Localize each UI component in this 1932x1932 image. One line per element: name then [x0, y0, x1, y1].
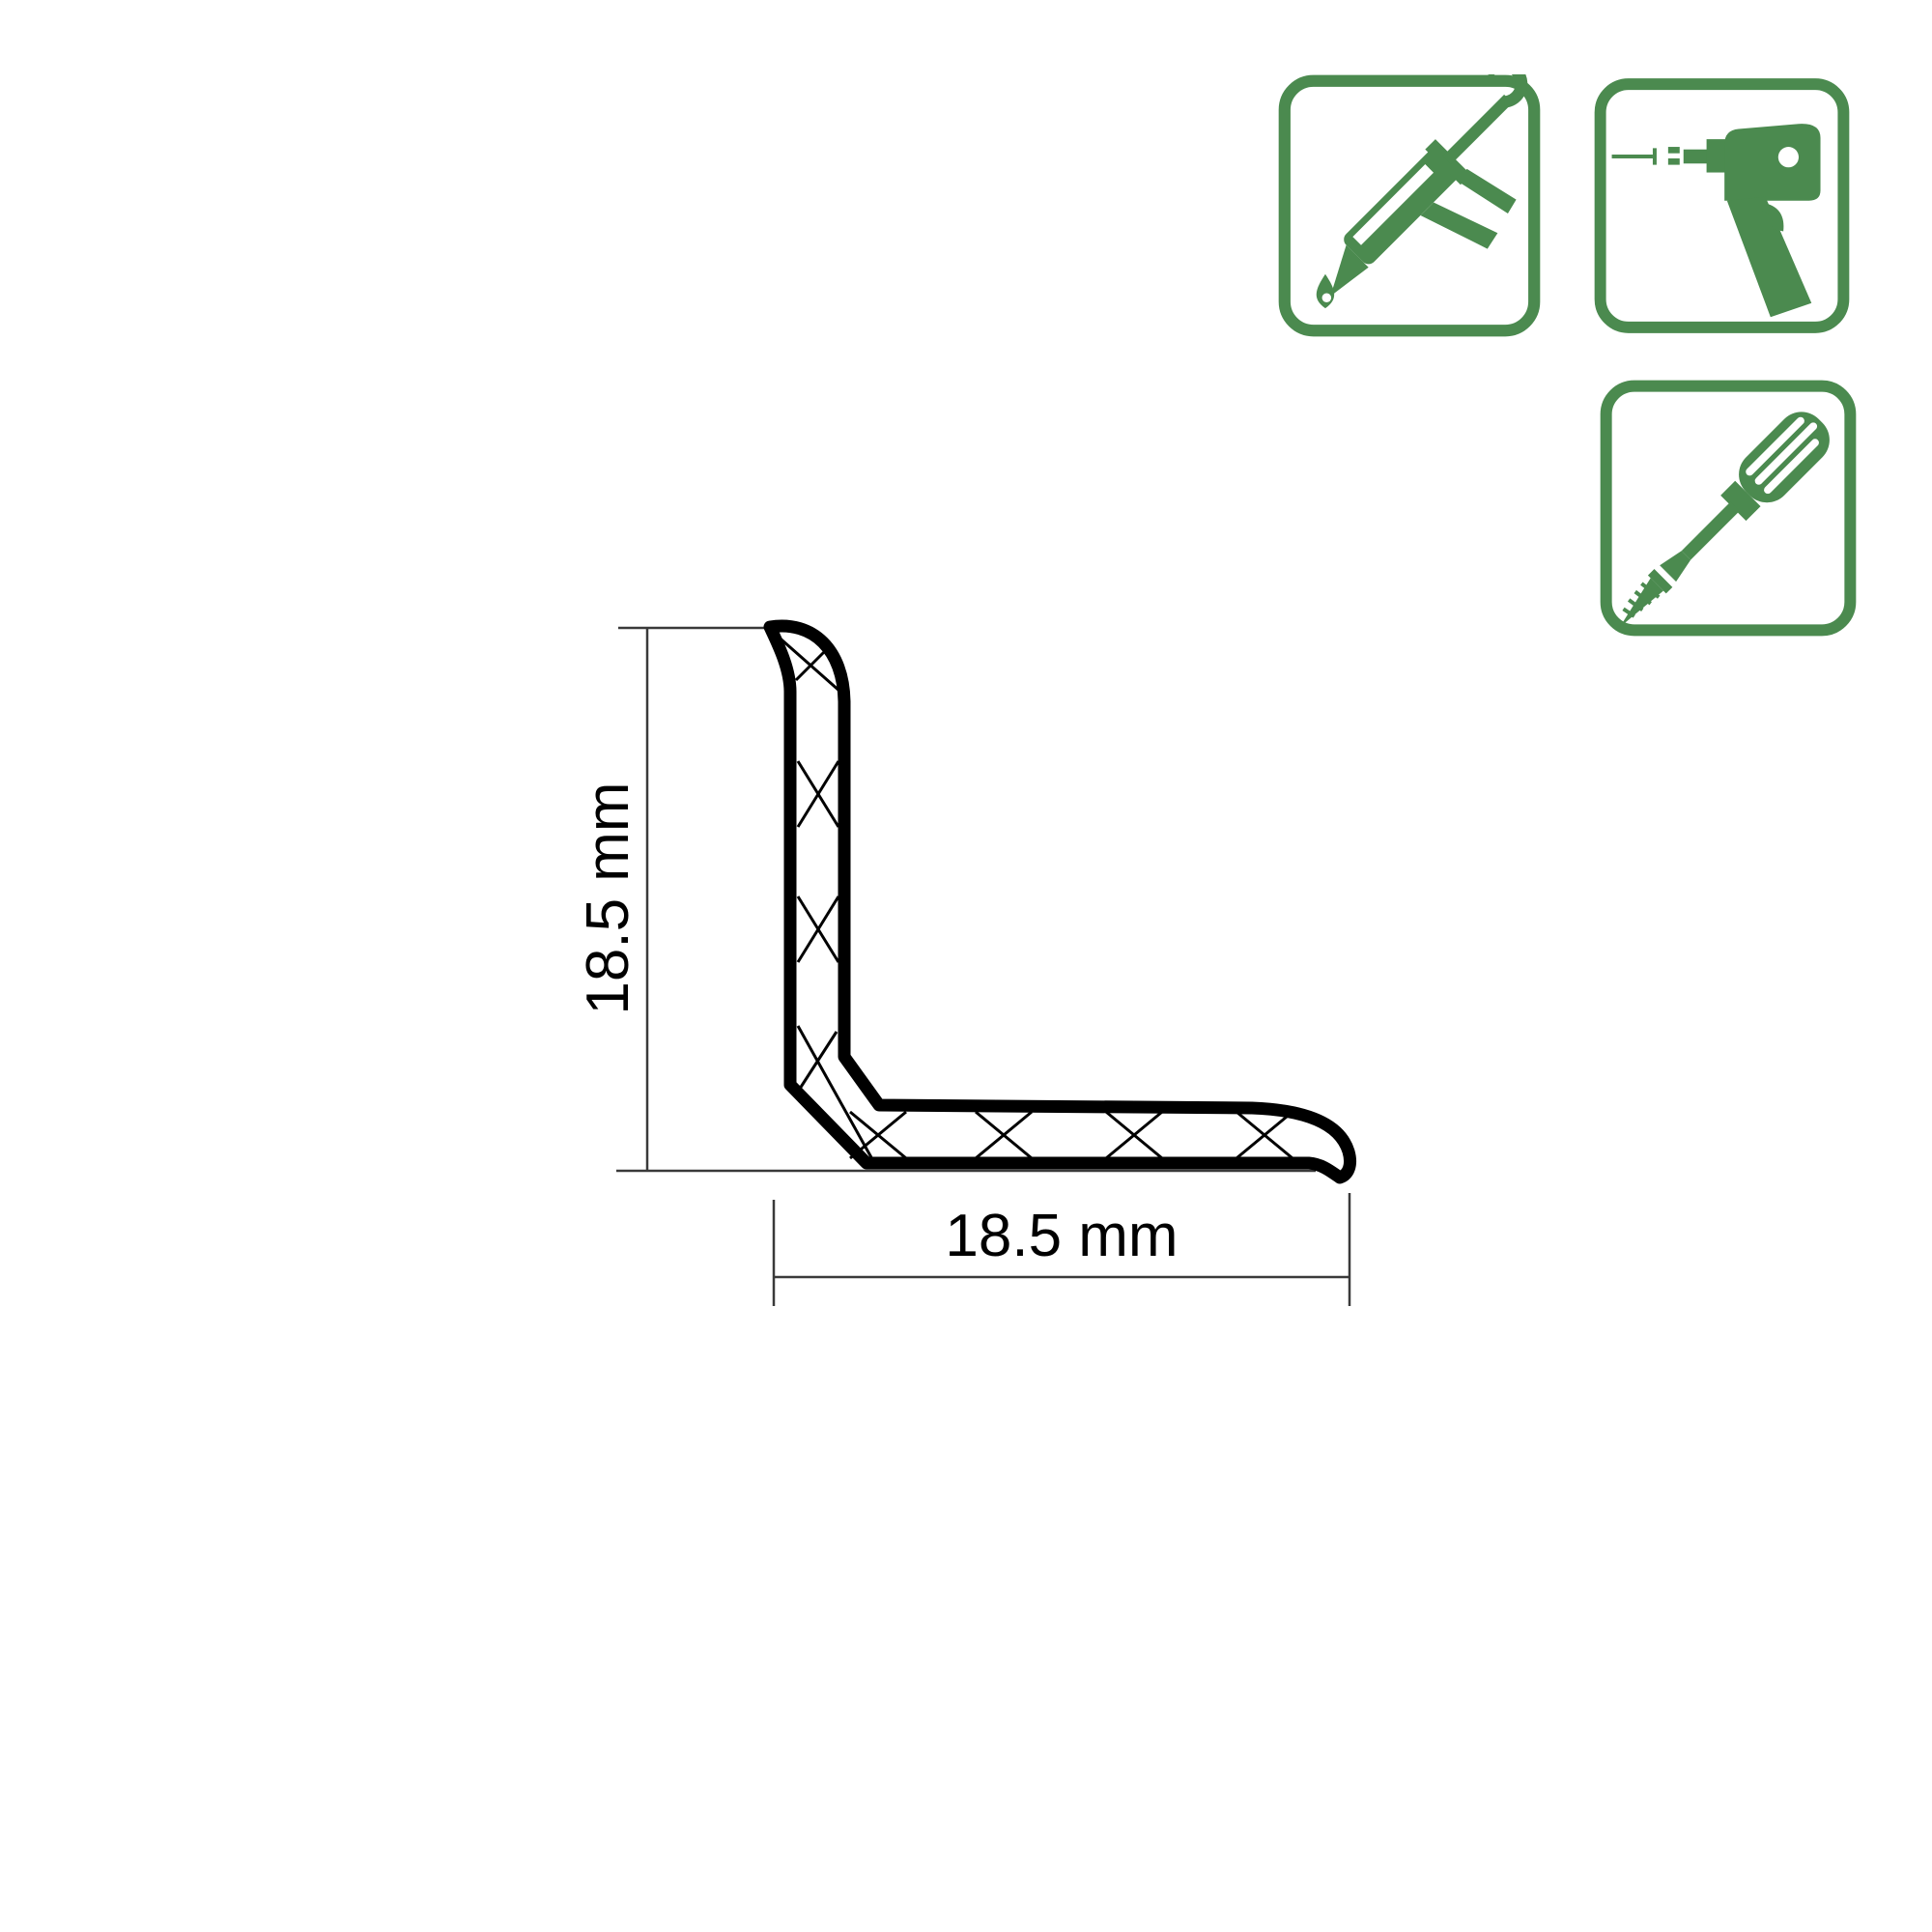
width-dimension-label: 18.5 mm	[945, 1203, 1178, 1269]
nail-gun-icon	[1594, 74, 1850, 337]
screwdriver-icon	[1599, 380, 1858, 637]
caulking-gun-icon	[1278, 74, 1541, 337]
l-profile-outline	[770, 626, 1350, 1178]
badge-frame	[1601, 84, 1844, 327]
product-spec-image: 18.5 mm 18.5 mm	[0, 0, 1932, 1932]
height-dimension-label: 18.5 mm	[575, 781, 641, 1014]
